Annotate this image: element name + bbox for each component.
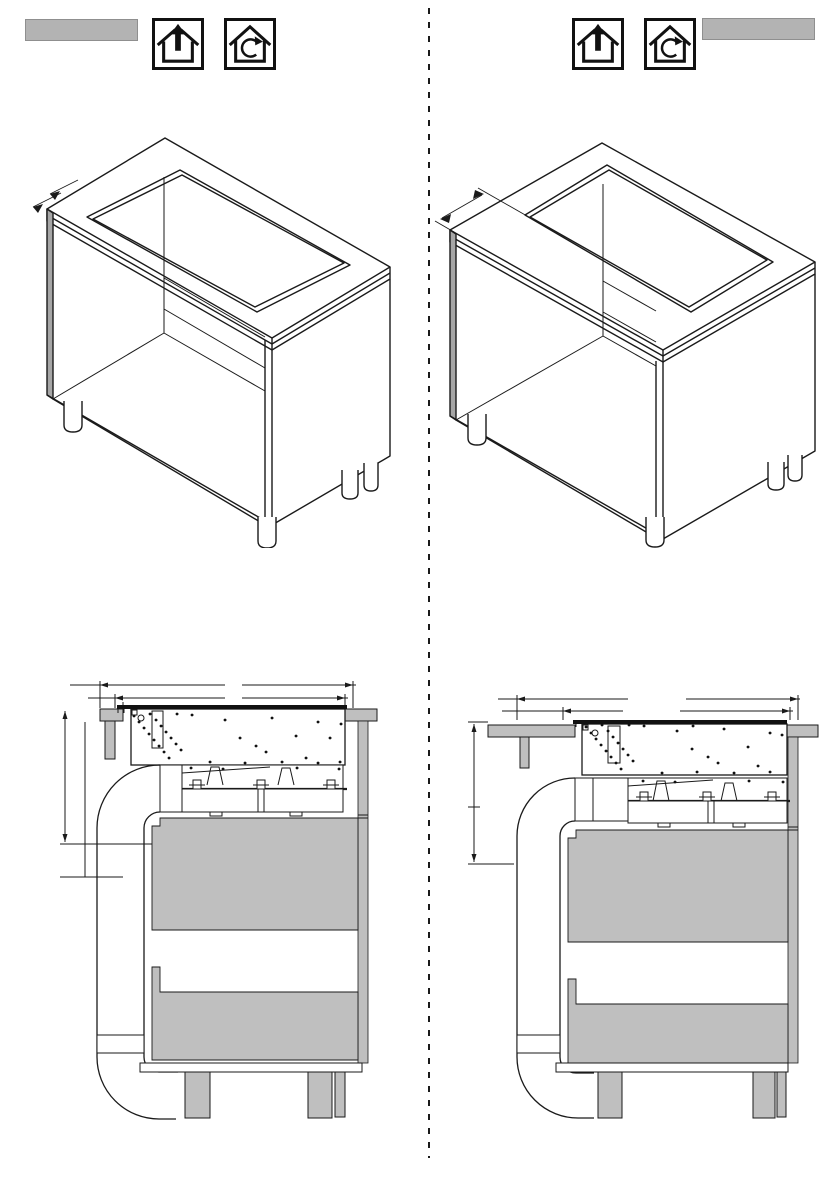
recirculation-icon-glyph — [228, 22, 272, 66]
exhaust-air-house-arrow-up-icon — [572, 18, 624, 70]
isometric-cabinet-cutout-set-back — [430, 118, 830, 553]
exhaust-air-icon-glyph — [576, 22, 620, 66]
redacted-model-label-left — [25, 19, 138, 41]
recirculation-house-loop-icon — [644, 18, 696, 70]
cross-section-duct-variant-2 — [468, 678, 832, 1125]
exhaust-air-house-arrow-up-icon — [152, 18, 204, 70]
recirculation-icon-glyph — [648, 22, 692, 66]
isometric-cabinet-cutout-near-front — [20, 118, 420, 548]
redacted-model-label-right — [702, 18, 815, 40]
recirculation-house-loop-icon — [224, 18, 276, 70]
cross-section-duct-variant-1 — [60, 678, 400, 1125]
exhaust-air-icon-glyph — [156, 22, 200, 66]
